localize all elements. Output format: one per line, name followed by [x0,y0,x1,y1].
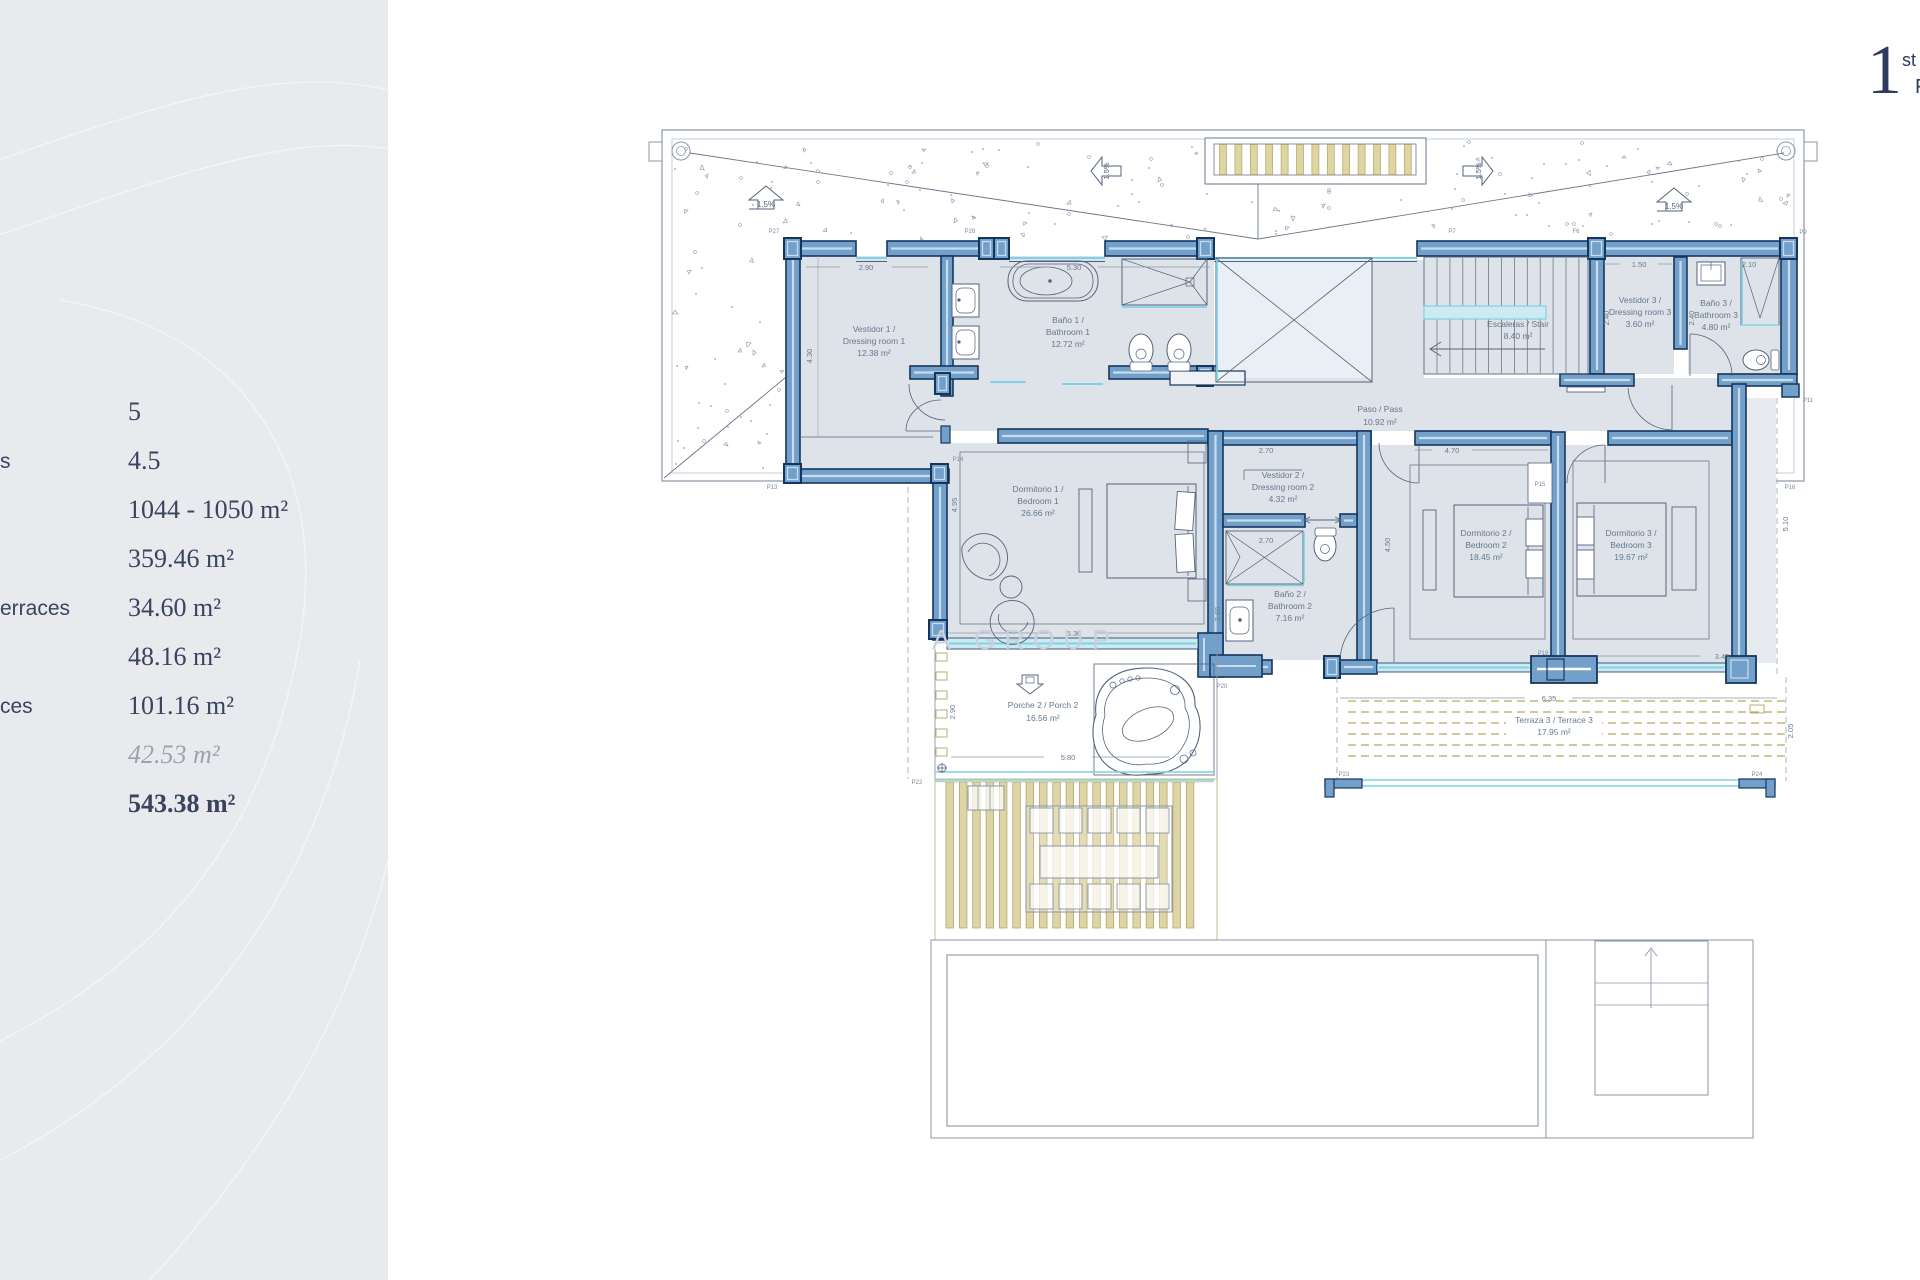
svg-text:Escaleras / Stair: Escaleras / Stair [1487,319,1549,329]
svg-text:P9: P9 [1799,230,1807,236]
svg-text:Vestidor 1 /: Vestidor 1 / [853,324,896,334]
svg-text:2.90: 2.90 [859,263,874,272]
svg-text:2.65: 2.65 [1213,607,1222,622]
svg-text:3.60 m²: 3.60 m² [1626,319,1655,329]
svg-text:4.30: 4.30 [805,349,814,364]
svg-text:Dressing room 2: Dressing room 2 [1252,482,1315,492]
svg-text:19.67 m²: 19.67 m² [1614,552,1648,562]
svg-text:P23: P23 [1339,772,1350,778]
svg-text:P20: P20 [1217,684,1228,690]
svg-text:2.90: 2.90 [948,705,957,720]
svg-text:Baño 2 /: Baño 2 / [1274,589,1306,599]
svg-text:P7: P7 [1448,229,1456,235]
svg-text:8.40 m²: 8.40 m² [1504,331,1533,341]
svg-text:7.16 m²: 7.16 m² [1276,613,1305,623]
svg-text:Bedroom 2: Bedroom 2 [1465,540,1507,550]
svg-text:1.5%: 1.5% [1665,202,1683,211]
svg-text:Bathroom 2: Bathroom 2 [1268,601,1312,611]
svg-text:10.92 m²: 10.92 m² [1363,417,1397,427]
svg-text:Dressing room 1: Dressing room 1 [843,336,906,346]
svg-text:4.50: 4.50 [1383,538,1392,553]
svg-text:2.10: 2.10 [1742,260,1757,269]
svg-text:12.72 m²: 12.72 m² [1051,339,1085,349]
svg-text:A GROUP: A GROUP [932,624,1119,655]
svg-text:6.35: 6.35 [1542,694,1557,703]
svg-text:P22: P22 [912,780,923,786]
svg-text:Bedroom 1: Bedroom 1 [1017,496,1059,506]
svg-text:P14: P14 [953,457,964,463]
svg-text:4.32 m²: 4.32 m² [1269,494,1298,504]
svg-text:Bedroom 3: Bedroom 3 [1610,540,1652,550]
svg-text:Terraza 3 / Terrace 3: Terraza 3 / Terrace 3 [1515,715,1593,725]
svg-text:1.5%: 1.5% [757,200,775,209]
svg-text:18.45 m²: 18.45 m² [1469,552,1503,562]
svg-text:P28: P28 [965,229,976,235]
svg-text:2.70: 2.70 [1259,536,1274,545]
svg-text:P15: P15 [1535,482,1546,488]
svg-text:17.95 m²: 17.95 m² [1537,727,1571,737]
svg-text:Baño 1 /: Baño 1 / [1052,315,1084,325]
svg-text:2.05: 2.05 [1786,724,1795,739]
svg-text:Paso / Pass: Paso / Pass [1357,404,1402,414]
svg-text:Dormitorio 1 /: Dormitorio 1 / [1012,484,1064,494]
svg-text:Dressing room 3: Dressing room 3 [1609,307,1672,317]
svg-text:Baño 3 /: Baño 3 / [1700,298,1732,308]
svg-text:5.10: 5.10 [1781,517,1790,532]
svg-text:4.95: 4.95 [950,498,959,513]
svg-text:P11: P11 [1803,398,1814,404]
svg-text:16.56 m²: 16.56 m² [1026,713,1060,723]
svg-text:P19: P19 [1538,651,1549,657]
svg-text:2.70: 2.70 [1259,446,1274,455]
svg-text:Bathroom 3: Bathroom 3 [1694,310,1738,320]
svg-text:P13: P13 [767,485,778,491]
svg-text:Dormitorio 2 /: Dormitorio 2 / [1460,528,1512,538]
svg-text:P24: P24 [1752,772,1763,778]
svg-text:1.50: 1.50 [1632,260,1647,269]
svg-text:P27: P27 [769,229,780,235]
svg-text:Porche 2 / Porch 2: Porche 2 / Porch 2 [1008,700,1079,710]
svg-text:Bathroom 1: Bathroom 1 [1046,327,1090,337]
svg-text:Vestidor 2 /: Vestidor 2 / [1262,470,1305,480]
svg-text:4.70: 4.70 [1445,446,1460,455]
svg-text:Vestidor 3 /: Vestidor 3 / [1619,295,1662,305]
svg-text:5.80: 5.80 [1061,753,1076,762]
svg-text:1.5%: 1.5% [1102,162,1111,179]
svg-text:5.30: 5.30 [1067,263,1082,272]
svg-text:Dormitorio 3 /: Dormitorio 3 / [1605,528,1657,538]
svg-text:4.80 m²: 4.80 m² [1702,322,1731,332]
svg-text:26.66 m²: 26.66 m² [1021,508,1055,518]
svg-text:1.5%: 1.5% [1474,162,1483,179]
svg-text:12.38 m²: 12.38 m² [857,348,891,358]
svg-text:P16: P16 [1785,485,1796,491]
svg-text:3.45: 3.45 [1715,652,1730,661]
svg-text:F6: F6 [1572,229,1580,235]
